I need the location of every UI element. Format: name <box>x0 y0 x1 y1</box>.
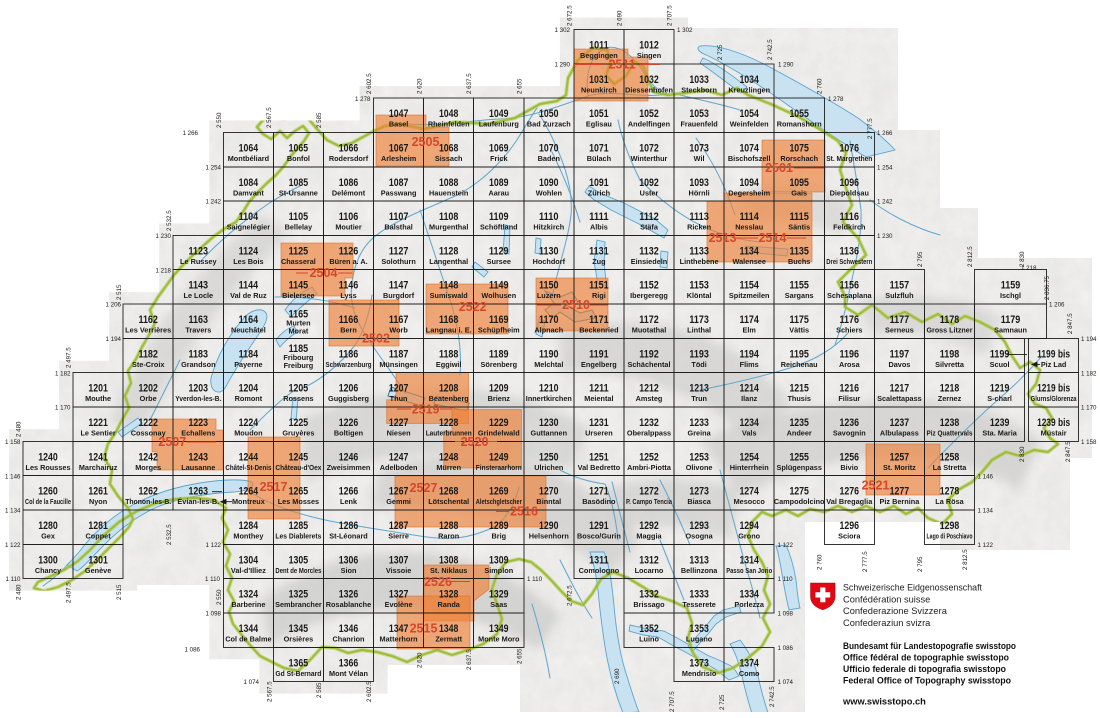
svg-text:2 497.5: 2 497.5 <box>66 347 73 368</box>
svg-text:Les Verrières: Les Verrières <box>125 326 171 335</box>
svg-text:Damvant: Damvant <box>233 188 264 197</box>
svg-text:Maggia: Maggia <box>636 532 662 541</box>
svg-text:Ambri-Piotta: Ambri-Piotta <box>627 463 672 472</box>
svg-text:2517: 2517 <box>260 480 288 494</box>
svg-text:2 655: 2 655 <box>517 78 524 94</box>
svg-text:1 230: 1 230 <box>156 233 172 240</box>
svg-text:1281: 1281 <box>88 520 108 532</box>
svg-text:1 146: 1 146 <box>978 473 994 480</box>
svg-text:Muotathal: Muotathal <box>632 326 666 335</box>
svg-text:Worb: Worb <box>389 326 408 335</box>
svg-text:1092: 1092 <box>639 177 659 189</box>
svg-text:Langnau i. E.: Langnau i. E. <box>426 326 472 335</box>
svg-text:1201: 1201 <box>88 383 108 395</box>
svg-text:1254: 1254 <box>739 451 759 463</box>
svg-text:1150: 1150 <box>539 280 559 292</box>
svg-text:1219: 1219 <box>990 383 1010 395</box>
svg-text:Steckborn: Steckborn <box>681 85 717 94</box>
svg-text:Eglisau: Eglisau <box>586 120 612 129</box>
svg-text:2 760: 2 760 <box>817 554 824 570</box>
svg-text:1129: 1129 <box>489 245 509 257</box>
svg-text:Morat: Morat <box>288 327 308 336</box>
svg-text:Nyon: Nyon <box>89 497 107 506</box>
svg-text:Mesocco: Mesocco <box>734 497 766 506</box>
svg-text:Ischgl: Ischgl <box>1000 291 1021 300</box>
svg-text:Diessenhofen: Diessenhofen <box>625 85 673 94</box>
svg-text:1 134: 1 134 <box>978 508 994 515</box>
svg-text:Biasca: Biasca <box>687 497 711 506</box>
svg-text:1091: 1091 <box>589 177 609 189</box>
svg-text:1075: 1075 <box>789 143 809 155</box>
svg-text:1284: 1284 <box>239 520 259 532</box>
svg-text:1095: 1095 <box>789 177 809 189</box>
svg-text:Engelberg: Engelberg <box>581 360 617 369</box>
svg-text:1108: 1108 <box>439 211 459 223</box>
svg-text:Bivio: Bivio <box>840 463 858 472</box>
svg-text:1135: 1135 <box>789 245 809 257</box>
svg-text:1252: 1252 <box>639 451 659 463</box>
svg-text:1198: 1198 <box>940 348 960 360</box>
svg-text:1 110: 1 110 <box>527 576 543 583</box>
svg-text:Col de la Faucille: Col de la Faucille <box>25 497 71 506</box>
svg-text:1186: 1186 <box>339 348 359 360</box>
svg-text:Chancy: Chancy <box>35 566 62 575</box>
svg-text:1 074: 1 074 <box>244 679 260 686</box>
svg-text:Sumiswald: Sumiswald <box>430 291 468 300</box>
svg-text:Zweisimmen: Zweisimmen <box>327 463 371 472</box>
svg-text:1193: 1193 <box>689 348 709 360</box>
svg-text:1 206: 1 206 <box>106 302 122 309</box>
svg-text:1011: 1011 <box>589 40 609 52</box>
svg-text:2502: 2502 <box>362 332 390 346</box>
svg-text:1288: 1288 <box>439 520 459 532</box>
svg-text:Frick: Frick <box>490 154 508 163</box>
svg-text:2527: 2527 <box>410 481 438 495</box>
svg-text:Schiers: Schiers <box>836 326 862 335</box>
svg-text:Binntal: Binntal <box>536 497 561 506</box>
svg-text:Campodolcino: Campodolcino <box>774 497 825 506</box>
svg-text:Confédération suisse: Confédération suisse <box>843 594 930 604</box>
svg-text:1089: 1089 <box>489 177 509 189</box>
svg-text:1227: 1227 <box>389 417 409 429</box>
svg-text:1263: 1263 <box>189 486 209 498</box>
svg-text:1125: 1125 <box>289 245 309 257</box>
svg-text:1179: 1179 <box>1001 314 1021 326</box>
svg-text:Delémont: Delémont <box>332 188 366 197</box>
svg-text:1151: 1151 <box>589 280 609 292</box>
svg-text:Thusis: Thusis <box>787 394 811 403</box>
svg-text:Adelboden: Adelboden <box>380 463 418 472</box>
svg-text:1126: 1126 <box>339 245 359 257</box>
svg-text:Burgdorf: Burgdorf <box>383 291 415 300</box>
svg-text:1143: 1143 <box>189 280 209 292</box>
svg-text:1 122: 1 122 <box>778 542 794 549</box>
svg-text:2 550: 2 550 <box>216 589 223 605</box>
svg-text:Freiburg: Freiburg <box>284 361 314 370</box>
svg-text:Brienz: Brienz <box>488 394 511 403</box>
svg-text:2 812.5: 2 812.5 <box>962 549 969 570</box>
svg-text:2 742.5: 2 742.5 <box>767 39 774 60</box>
svg-text:1131: 1131 <box>589 245 609 257</box>
svg-text:1251: 1251 <box>589 451 609 463</box>
svg-text:St. Niklaus: St. Niklaus <box>430 566 467 575</box>
svg-text:1346: 1346 <box>339 623 359 635</box>
svg-text:1169: 1169 <box>489 314 509 326</box>
svg-text:1 266: 1 266 <box>877 130 893 137</box>
svg-text:1242: 1242 <box>138 451 158 463</box>
svg-text:1239: 1239 <box>990 417 1010 429</box>
svg-text:1266: 1266 <box>339 486 359 498</box>
svg-text:Monte Moro: Monte Moro <box>478 634 520 643</box>
svg-text:Scalettapass: Scalettapass <box>877 394 922 403</box>
svg-text:1104: 1104 <box>239 211 259 223</box>
svg-text:1182: 1182 <box>138 348 158 360</box>
svg-text:1328: 1328 <box>439 589 459 601</box>
svg-text:2 777.5: 2 777.5 <box>862 551 869 572</box>
svg-text:1127: 1127 <box>389 245 409 257</box>
svg-text:Balsthal: Balsthal <box>384 223 412 232</box>
svg-text:Lugano: Lugano <box>686 634 713 643</box>
svg-text:Sciora: Sciora <box>838 532 861 541</box>
svg-text:1 098: 1 098 <box>206 611 222 618</box>
svg-text:2 585: 2 585 <box>316 112 323 128</box>
svg-text:Sursee: Sursee <box>487 257 511 266</box>
svg-text:Hörnli: Hörnli <box>689 188 710 197</box>
svg-text:Hauenstein: Hauenstein <box>429 188 468 197</box>
svg-text:Basel: Basel <box>389 120 408 129</box>
svg-text:1205: 1205 <box>289 383 309 395</box>
svg-text:Genève: Genève <box>85 566 111 575</box>
svg-text:Meiental: Meiental <box>584 394 613 403</box>
svg-text:Mont Vélan: Mont Vélan <box>329 669 368 678</box>
svg-text:Zürich: Zürich <box>588 188 610 197</box>
svg-text:1162: 1162 <box>138 314 158 326</box>
svg-text:1349: 1349 <box>489 623 509 635</box>
svg-text:1244: 1244 <box>239 451 259 463</box>
svg-text:Le Locle: Le Locle <box>183 291 213 300</box>
svg-text:1066: 1066 <box>339 143 359 155</box>
svg-text:Baden: Baden <box>538 154 560 163</box>
svg-text:1189: 1189 <box>489 348 509 360</box>
svg-text:Wohlen: Wohlen <box>536 188 562 197</box>
svg-text:Zermatt: Zermatt <box>435 634 462 643</box>
svg-text:1245: 1245 <box>289 451 309 463</box>
svg-text:2 550: 2 550 <box>216 112 223 128</box>
svg-text:1 086: 1 086 <box>185 647 201 654</box>
svg-text:2 515: 2 515 <box>116 584 123 600</box>
svg-text:2 847.5: 2 847.5 <box>1067 313 1074 334</box>
svg-text:Luino: Luino <box>639 634 659 643</box>
svg-text:1111: 1111 <box>589 211 609 223</box>
svg-text:1012: 1012 <box>639 40 659 52</box>
svg-text:Châtel-St-Denis: Châtel-St-Denis <box>225 463 271 472</box>
svg-text:2 795: 2 795 <box>917 556 924 572</box>
svg-text:Niesen: Niesen <box>387 429 411 438</box>
svg-text:Thun: Thun <box>390 394 408 403</box>
svg-text:1290: 1290 <box>539 520 559 532</box>
svg-text:Sörenberg: Sörenberg <box>481 360 518 369</box>
svg-text:1053: 1053 <box>689 108 709 120</box>
svg-text:Bad Zurzach: Bad Zurzach <box>527 120 571 129</box>
svg-text:www.swisstopo.ch: www.swisstopo.ch <box>842 697 926 707</box>
svg-text:Gruyères: Gruyères <box>282 429 314 438</box>
svg-text:Osogna: Osogna <box>686 532 714 541</box>
svg-text:Sembrancher: Sembrancher <box>275 600 322 609</box>
svg-text:Gemmi: Gemmi <box>386 497 411 506</box>
svg-text:Bischofszell: Bischofszell <box>728 154 771 163</box>
svg-text:1153: 1153 <box>689 280 709 292</box>
svg-text:2 707.5: 2 707.5 <box>667 5 674 26</box>
svg-text:Chasseral: Chasseral <box>281 257 316 266</box>
svg-text:Como: Como <box>739 669 760 678</box>
svg-text:1 254: 1 254 <box>877 164 893 171</box>
svg-text:Ricken: Ricken <box>687 223 711 232</box>
svg-text:Les Rousses: Les Rousses <box>25 463 70 472</box>
svg-text:1050: 1050 <box>539 108 559 120</box>
svg-text:1265: 1265 <box>289 486 309 498</box>
svg-text:2 637.5: 2 637.5 <box>466 73 473 94</box>
svg-text:1173: 1173 <box>689 314 709 326</box>
svg-text:2 620: 2 620 <box>417 78 424 94</box>
svg-text:2 620: 2 620 <box>417 652 424 668</box>
svg-text:1090: 1090 <box>539 177 559 189</box>
svg-text:Elm: Elm <box>743 326 757 335</box>
svg-text:1096: 1096 <box>840 177 860 189</box>
svg-text:Hitzkirch: Hitzkirch <box>533 223 564 232</box>
svg-text:1308: 1308 <box>439 554 459 566</box>
svg-text:Sissach: Sissach <box>435 154 463 163</box>
svg-text:1 110: 1 110 <box>5 576 21 583</box>
svg-text:2 847.5: 2 847.5 <box>1065 441 1072 462</box>
svg-text:2522: 2522 <box>459 300 487 314</box>
svg-text:1033: 1033 <box>689 74 709 86</box>
svg-text:1049: 1049 <box>489 108 509 120</box>
svg-text:2 836.75: 2 836.75 <box>1044 275 1051 300</box>
svg-text:Montreux: Montreux <box>232 497 265 506</box>
svg-text:1278: 1278 <box>940 486 960 498</box>
svg-text:Greina: Greina <box>688 429 712 438</box>
svg-text:Rossens: Rossens <box>283 394 313 403</box>
svg-text:Federal Office of Topography s: Federal Office of Topography swisstopo <box>843 675 1011 685</box>
svg-text:1194: 1194 <box>739 348 759 360</box>
svg-text:1168: 1168 <box>439 314 459 326</box>
svg-text:Evolène: Evolène <box>385 600 413 609</box>
svg-text:1 098: 1 098 <box>778 611 794 618</box>
svg-text:1192: 1192 <box>639 348 659 360</box>
svg-text:1 182: 1 182 <box>55 370 71 377</box>
svg-text:Solothurn: Solothurn <box>381 257 415 266</box>
svg-text:1271: 1271 <box>589 486 609 498</box>
svg-text:2 567.5: 2 567.5 <box>266 107 273 128</box>
svg-text:Bundesamt für Landestopografie: Bundesamt für Landestopografie swisstopo <box>843 641 1016 651</box>
svg-text:Orsières: Orsières <box>284 634 314 643</box>
svg-text:1176: 1176 <box>840 314 860 326</box>
svg-text:1210: 1210 <box>539 383 559 395</box>
svg-text:Bonfol: Bonfol <box>287 154 310 163</box>
svg-text:1068: 1068 <box>439 143 459 155</box>
svg-text:Montbéliard: Montbéliard <box>228 154 269 163</box>
svg-text:Val Bedretto: Val Bedretto <box>578 463 621 472</box>
svg-text:Trun: Trun <box>691 394 707 403</box>
svg-text:1195: 1195 <box>789 348 809 360</box>
svg-text:Albulapass: Albulapass <box>880 429 919 438</box>
svg-text:2513: 2513 <box>709 231 737 245</box>
svg-text:Albis: Albis <box>590 223 608 232</box>
svg-text:1 230: 1 230 <box>877 233 893 240</box>
svg-text:1209: 1209 <box>489 383 509 395</box>
svg-text:1113: 1113 <box>689 211 709 223</box>
svg-text:La Stretta: La Stretta <box>933 463 968 472</box>
svg-text:Ufficio federale di topografia: Ufficio federale di topografia swisstopo <box>843 664 1006 674</box>
svg-text:2 532.5: 2 532.5 <box>166 210 173 231</box>
svg-text:1243: 1243 <box>189 451 209 463</box>
svg-text:Laufenburg: Laufenburg <box>479 120 519 129</box>
svg-text:Locarno: Locarno <box>635 566 664 575</box>
svg-text:1178: 1178 <box>940 314 960 326</box>
svg-text:1217: 1217 <box>890 383 910 395</box>
svg-text:Schöftland: Schöftland <box>480 223 518 232</box>
svg-text:1347: 1347 <box>389 623 409 635</box>
svg-text:1 146: 1 146 <box>5 473 21 480</box>
svg-text:1202: 1202 <box>138 383 158 395</box>
svg-text:Comologno: Comologno <box>579 566 620 575</box>
svg-text:Val Bregaglia: Val Bregaglia <box>826 497 873 506</box>
svg-text:Büren a. A.: Büren a. A. <box>329 257 367 266</box>
svg-text:1225: 1225 <box>289 417 309 429</box>
svg-text:1216: 1216 <box>840 383 860 395</box>
svg-text:2516: 2516 <box>510 505 538 519</box>
svg-text:Ulrichen: Ulrichen <box>534 463 563 472</box>
svg-text:1257: 1257 <box>890 451 910 463</box>
svg-text:1269: 1269 <box>489 486 509 498</box>
svg-text:Mouthe: Mouthe <box>85 394 111 403</box>
svg-text:Flims: Flims <box>740 360 759 369</box>
svg-text:1332: 1332 <box>639 589 659 601</box>
svg-text:1134: 1134 <box>739 245 759 257</box>
svg-text:1 278: 1 278 <box>355 96 371 103</box>
svg-text:1 194: 1 194 <box>106 336 122 343</box>
svg-text:Bellelay: Bellelay <box>285 223 314 232</box>
svg-text:1 110: 1 110 <box>778 576 794 583</box>
svg-text:1274: 1274 <box>739 486 759 498</box>
svg-text:2 725: 2 725 <box>719 694 726 710</box>
svg-text:1261: 1261 <box>88 486 108 498</box>
svg-text:1223: 1223 <box>189 417 209 429</box>
svg-text:Reichenau: Reichenau <box>781 360 818 369</box>
svg-text:1073: 1073 <box>689 143 709 155</box>
svg-text:1 170: 1 170 <box>1081 405 1097 412</box>
svg-text:1116: 1116 <box>840 211 860 223</box>
svg-text:Les Bois: Les Bois <box>233 257 263 266</box>
svg-text:1285: 1285 <box>289 520 309 532</box>
svg-text:1292: 1292 <box>639 520 659 532</box>
svg-text:Schächental: Schächental <box>628 360 671 369</box>
svg-text:1 254: 1 254 <box>206 164 222 171</box>
svg-text:Tödi: Tödi <box>691 360 706 369</box>
svg-text:1088: 1088 <box>439 177 459 189</box>
svg-text:Romont: Romont <box>235 394 263 403</box>
svg-text:Confederazione Svizzera: Confederazione Svizzera <box>843 606 948 616</box>
svg-text:Melchtal: Melchtal <box>534 360 563 369</box>
svg-text:P. Campo Tencia: P. Campo Tencia <box>626 497 673 506</box>
svg-text:1208: 1208 <box>439 383 459 395</box>
svg-text:1 182: 1 182 <box>1081 370 1097 377</box>
svg-text:Piz Quattervals: Piz Quattervals <box>927 429 973 438</box>
svg-text:1051: 1051 <box>589 108 609 120</box>
svg-text:1275: 1275 <box>789 486 809 498</box>
svg-text:Schüpfheim: Schüpfheim <box>478 326 520 335</box>
svg-text:Grono: Grono <box>738 532 760 541</box>
svg-text:2521: 2521 <box>862 479 890 493</box>
svg-text:Müstair: Müstair <box>1041 429 1067 438</box>
svg-text:Le Sentier: Le Sentier <box>80 429 115 438</box>
svg-text:1373: 1373 <box>689 657 709 669</box>
svg-text:1167: 1167 <box>389 314 409 326</box>
svg-text:Walensee: Walensee <box>732 257 765 266</box>
svg-text:1148: 1148 <box>439 280 459 292</box>
svg-text:Feldkirch: Feldkirch <box>833 223 865 232</box>
svg-text:2511: 2511 <box>608 58 635 72</box>
svg-text:1146: 1146 <box>339 280 359 292</box>
svg-text:1109: 1109 <box>489 211 509 223</box>
svg-text:1175: 1175 <box>789 314 809 326</box>
svg-text:1374: 1374 <box>739 657 759 669</box>
svg-text:2 690: 2 690 <box>617 10 624 26</box>
svg-text:2 777.5: 2 777.5 <box>867 118 874 139</box>
svg-text:Simplon: Simplon <box>484 566 513 575</box>
svg-text:1267: 1267 <box>389 486 409 498</box>
svg-text:1 122: 1 122 <box>206 542 222 549</box>
svg-text:1314: 1314 <box>739 554 759 566</box>
svg-text:1048: 1048 <box>439 108 459 120</box>
svg-text:Zug: Zug <box>592 257 605 266</box>
svg-text:Linthebene: Linthebene <box>680 257 719 266</box>
svg-text:1154: 1154 <box>739 280 759 292</box>
svg-text:2 497.5: 2 497.5 <box>66 582 73 603</box>
svg-text:1047: 1047 <box>389 108 409 120</box>
svg-text:1 242: 1 242 <box>206 199 222 206</box>
svg-text:2526: 2526 <box>424 575 452 589</box>
svg-text:1147: 1147 <box>389 280 409 292</box>
svg-text:1272: 1272 <box>639 486 659 498</box>
svg-text:Coppet: Coppet <box>86 532 112 541</box>
svg-text:1211: 1211 <box>589 383 609 395</box>
svg-text:Andeer: Andeer <box>787 429 812 438</box>
svg-text:Linthal: Linthal <box>687 326 711 335</box>
svg-text:1268: 1268 <box>439 486 459 498</box>
svg-text:2 742.5: 2 742.5 <box>769 686 776 707</box>
svg-text:St-Ursanne: St-Ursanne <box>279 188 318 197</box>
svg-text:Marchairuz: Marchairuz <box>79 463 118 472</box>
svg-text:Hinterrhein: Hinterrhein <box>730 463 769 472</box>
svg-text:1132: 1132 <box>639 245 659 257</box>
svg-text:Einsiedeln: Einsiedeln <box>631 257 668 266</box>
svg-text:Gais: Gais <box>791 188 807 197</box>
svg-text:1 266: 1 266 <box>183 130 199 137</box>
svg-text:1152: 1152 <box>639 280 659 292</box>
svg-text:1258: 1258 <box>940 451 960 463</box>
svg-text:1085: 1085 <box>289 177 309 189</box>
svg-text:Drei Schwestern: Drei Schwestern <box>826 257 872 266</box>
svg-text:Kreuzlingen: Kreuzlingen <box>728 85 770 94</box>
svg-text:1327: 1327 <box>389 589 409 601</box>
svg-text:Confederaziun svizra: Confederaziun svizra <box>843 618 931 628</box>
svg-text:1253: 1253 <box>689 451 709 463</box>
svg-text:1219 bis: 1219 bis <box>1037 383 1070 395</box>
svg-text:1270: 1270 <box>539 486 559 498</box>
svg-text:1280: 1280 <box>38 520 58 532</box>
svg-text:1052: 1052 <box>639 108 659 120</box>
